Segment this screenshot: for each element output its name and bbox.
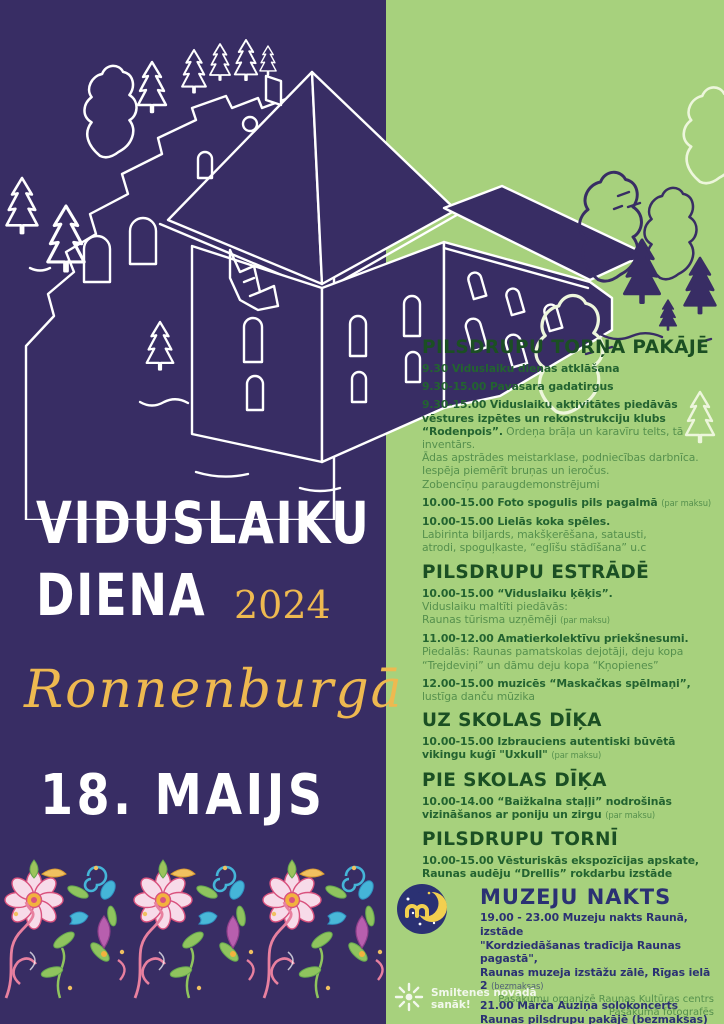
schedule-text-run: Viduslaiku maltīti piedāvās: (422, 600, 568, 613)
location-label: Ronnenburgā (24, 664, 364, 716)
schedule-text-run: 11.00-12.00 Amatierkolektīvu priekšnesum… (422, 632, 688, 645)
schedule-text-run: Piedalās: Raunas pamatskolas dejotāji, d… (422, 645, 683, 658)
sunburst-icon (394, 982, 424, 1016)
schedule-text-run: vikingu kuģī "Uxkull" (422, 748, 551, 761)
schedule-text-run: "Kordziedāšanas tradīcija Raunas pagastā… (480, 939, 681, 966)
organizer-line2: Pasākumā fotografēs (609, 1007, 714, 1018)
organizer-line1: Pasākumu organizē Raunas Kultūras centrs (498, 994, 714, 1005)
title-line2: DIENA (36, 566, 206, 624)
schedule-item: 10.00-15.00 Foto spogulis pils pagalmā (… (422, 496, 714, 510)
schedule-text-run: (par maksu) (560, 615, 610, 625)
schedule-section: PIE SKOLAS DĪĶA10.00-14.00 “Baižkalna st… (422, 770, 714, 822)
schedule-text-run: 19.00 - 23.00 Muzeju nakts Raunā, izstād… (480, 911, 688, 938)
schedule-text-run: 10.00-15.00 Izbrauciens autentiski būvēt… (422, 735, 675, 748)
moon-icon (396, 883, 448, 935)
schedule-text-run: 9.30 Viduslaiku dienas atklāšana (422, 362, 619, 375)
schedule-item: 10.00-14.00 “Baižkalna staļļi” nodrošinā… (422, 795, 714, 822)
section-heading: UZ SKOLAS DĪĶA (422, 710, 714, 731)
schedule-text-run: 10.00-14.00 “Baižkalna staļļi” nodrošinā… (422, 795, 672, 808)
schedule-text-run: Zobencīņu paraugdemonstrējumi (422, 478, 599, 491)
schedule-text-run: vēstures izpētes un rekonstrukciju klubs (422, 412, 666, 425)
schedule-item: 10.00-15.00 “Viduslaiku ķēķis”.Viduslaik… (422, 587, 714, 628)
schedule-item: 10.00-15.00 Izbrauciens autentiski būvēt… (422, 735, 714, 762)
schedule-item: 9.30-15.00 Pavasara gadatirgus (422, 380, 714, 393)
schedule-item: 9.30 Viduslaiku dienas atklāšana (422, 362, 714, 375)
schedule-section: PILSDRUPU TORŅA PAKĀJĒ9.30 Viduslaiku di… (422, 337, 714, 555)
schedule-text-run: (par maksu) (661, 498, 711, 508)
schedule-text-run: Raunas audēju “Drellis” rokdarbu izstāde (422, 867, 672, 880)
section-heading: PILSDRUPU TORNĪ (422, 829, 714, 850)
schedule-text-run: 10.00-15.00 Vēsturiskās ekspozīcijas aps… (422, 854, 699, 867)
title-line1: VIDUSLAIKU (36, 494, 370, 552)
schedule-text-run: 10.00-15.00 Foto spogulis pils pagalmā (422, 496, 661, 509)
date-label: 18. MAIJS (40, 768, 325, 824)
event-poster: VIDUSLAIKU DIENA 2024 Ronnenburgā 18. MA… (0, 0, 724, 1024)
schedule-text-run: 10.00-15.00 “Viduslaiku ķēķis”. (422, 587, 613, 600)
schedule-text-run: Raunas tūrisma uzņēmēji (422, 613, 560, 626)
section-heading: MUZEJU NAKTS (480, 887, 714, 908)
folk-ornament-border (0, 856, 386, 1002)
schedule-text-run: “Rodenpois”. (422, 425, 503, 438)
schedule-text-run: (par maksu) (605, 810, 655, 820)
schedule-item: 12.00-15.00 muzicēs “Maskačkas spēlmaņi”… (422, 677, 714, 703)
schedule: PILSDRUPU TORŅA PAKĀJĒ9.30 Viduslaiku di… (422, 337, 714, 1024)
schedule-item: 11.00-12.00 Amatierkolektīvu priekšnesum… (422, 632, 714, 672)
schedule-text-run: atrodi, spoguļkaste, “eglīšu stādīšana” … (422, 541, 646, 554)
section-heading: PILSDRUPU ESTRĀDĒ (422, 562, 714, 583)
section-heading: PILSDRUPU TORŅA PAKĀJĒ (422, 337, 714, 358)
schedule-text-run: “Trejdeviņi” un dāmu deju kopa “Kņopiene… (422, 659, 659, 672)
schedule-item: 10.00-15.00 Vēsturiskās ekspozīcijas aps… (422, 854, 714, 880)
schedule-text-run: Labirinta biljards, makšķerēšana, sataus… (422, 528, 647, 541)
section-heading: PIE SKOLAS DĪĶA (422, 770, 714, 791)
schedule-text-run: (par maksu) (551, 750, 601, 760)
schedule-item: 10.00-15.00 Lielās koka spēles.Labirinta… (422, 515, 714, 555)
schedule-text-run: 12.00-15.00 muzicēs “Maskačkas spēlmaņi”… (422, 677, 691, 690)
community-line2: sanāk! (431, 999, 471, 1011)
schedule-text-run: lustīga danču mūzika (422, 690, 535, 703)
schedule-text-run: vizināšanos ar poniju un zirgu (422, 808, 605, 821)
schedule-text-run: 9.30-15.00 Pavasara gadatirgus (422, 380, 613, 393)
schedule-text-run: 9.30-15.00 Viduslaiku aktivitātes piedāv… (422, 398, 678, 411)
schedule-section: PILSDRUPU ESTRĀDĒ10.00-15.00 “Viduslaiku… (422, 562, 714, 704)
schedule-section: PILSDRUPU TORNĪ10.00-15.00 Vēsturiskās e… (422, 829, 714, 880)
organizer-note: Pasākumu organizē Raunas Kultūras centrs… (498, 994, 714, 1019)
schedule-item: 9.30-15.00 Viduslaiku aktivitātes piedāv… (422, 398, 714, 490)
schedule-text-run: Iespēja piemērīt bruņas un ieročus. (422, 464, 609, 477)
year-label: 2024 (234, 586, 331, 624)
schedule-text-run: Ādas apstrādes meistarklase, podniecības… (422, 451, 699, 464)
schedule-text-run: 10.00-15.00 Lielās koka spēles. (422, 515, 610, 528)
schedule-section: UZ SKOLAS DĪĶA10.00-15.00 Izbrauciens au… (422, 710, 714, 762)
